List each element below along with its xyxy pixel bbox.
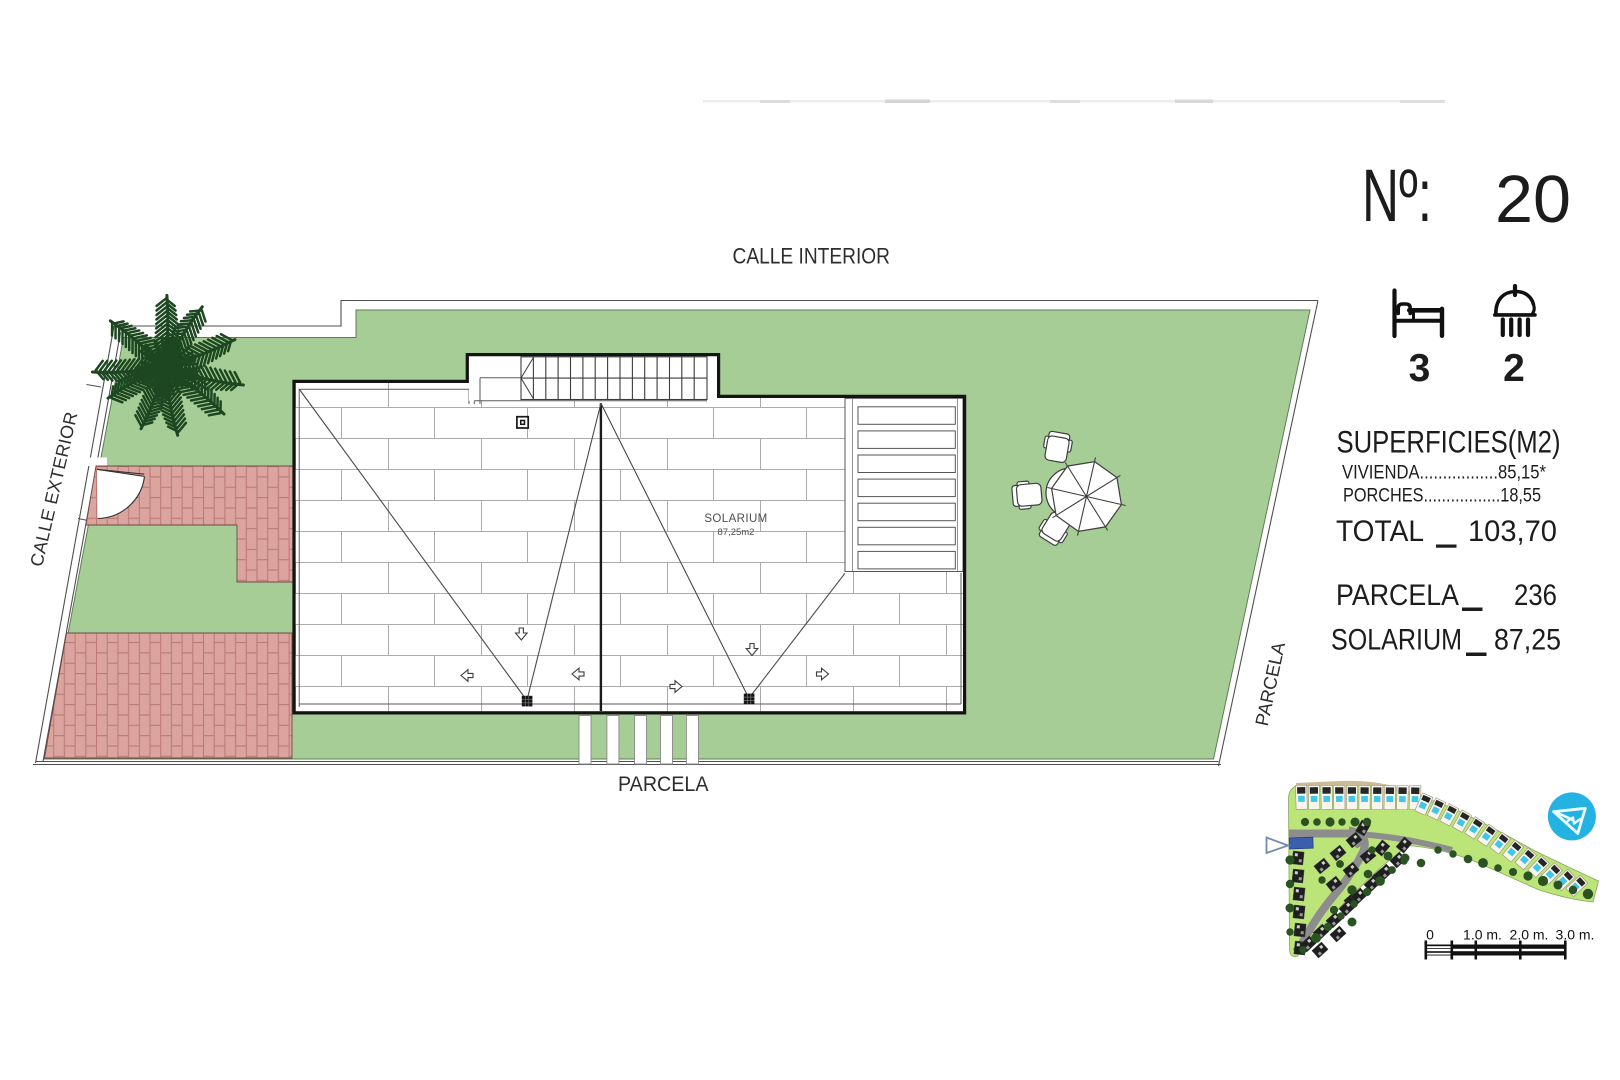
svg-text:PARCELA: PARCELA (1336, 579, 1459, 612)
svg-text:2: 2 (1503, 347, 1525, 390)
svg-text:87,25m2: 87,25m2 (718, 527, 755, 538)
svg-text:PARCELA: PARCELA (1251, 640, 1289, 728)
svg-text:SOLARIUM: SOLARIUM (704, 513, 767, 525)
svg-text:SOLARIUM: SOLARIUM (1331, 623, 1462, 656)
svg-text:3.0 m.: 3.0 m. (1556, 927, 1595, 943)
svg-text:103,70: 103,70 (1468, 515, 1557, 548)
svg-text:20: 20 (1495, 162, 1571, 237)
svg-text:Nº:: Nº: (1362, 154, 1432, 237)
svg-text:2.0 m.: 2.0 m. (1510, 927, 1549, 943)
svg-text:236: 236 (1514, 579, 1557, 612)
svg-text:0: 0 (1426, 927, 1434, 943)
svg-text:PORCHES.................18,55: PORCHES.................18,55 (1343, 485, 1541, 506)
svg-text:1.0 m.: 1.0 m. (1463, 927, 1502, 943)
svg-text:87,25: 87,25 (1494, 623, 1561, 656)
svg-text:3: 3 (1409, 347, 1431, 390)
svg-text:PARCELA: PARCELA (618, 772, 709, 796)
svg-text:CALLE EXTERIOR: CALLE EXTERIOR (26, 410, 81, 569)
svg-text:TOTAL: TOTAL (1336, 515, 1424, 548)
svg-text:SUPERFICIES(M2): SUPERFICIES(M2) (1337, 424, 1561, 460)
svg-text:VIVIENDA.................85,15: VIVIENDA.................85,15* (1342, 463, 1547, 484)
svg-text:CALLE INTERIOR: CALLE INTERIOR (733, 244, 891, 269)
